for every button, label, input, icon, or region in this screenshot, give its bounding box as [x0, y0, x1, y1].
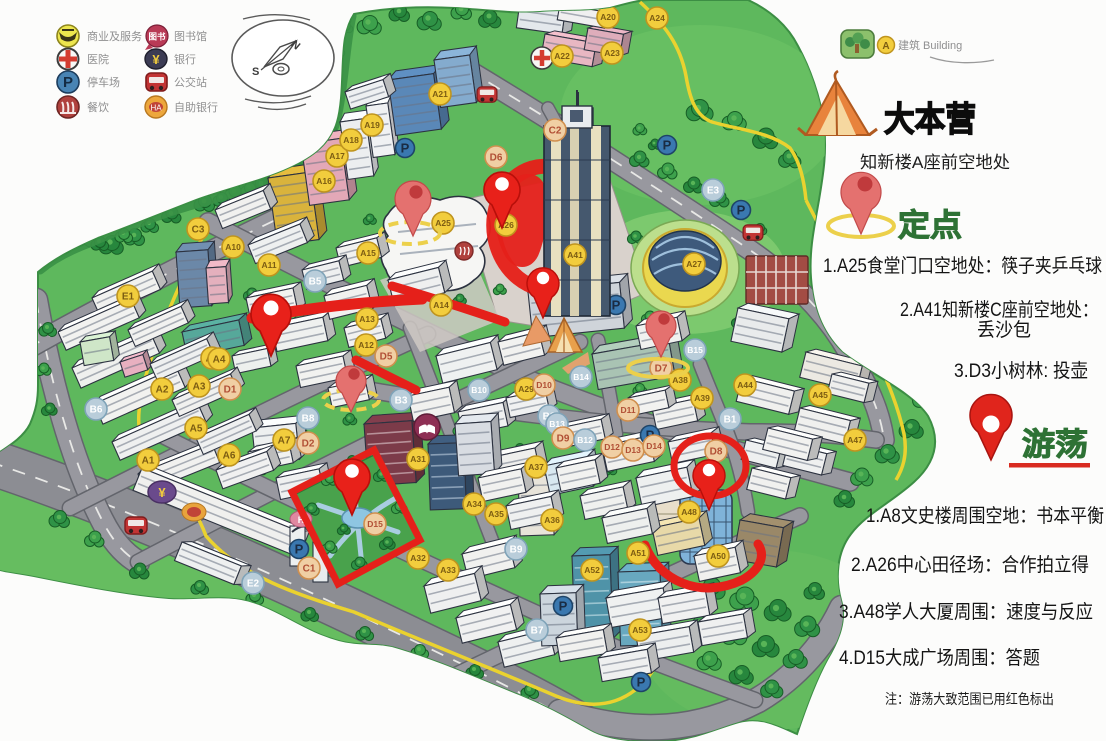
svg-text:D9: D9	[557, 434, 570, 445]
svg-text:A6: A6	[223, 451, 236, 462]
svg-text:A23: A23	[604, 48, 620, 58]
svg-text:A12: A12	[358, 340, 374, 350]
svg-text:P: P	[737, 203, 746, 218]
svg-text:B10: B10	[471, 385, 487, 395]
svg-text:D1: D1	[224, 385, 237, 396]
svg-text:丢沙包: 丢沙包	[977, 319, 1031, 341]
svg-text:D5: D5	[380, 352, 393, 363]
svg-text:A4: A4	[213, 355, 226, 366]
svg-text:¥: ¥	[158, 485, 166, 500]
svg-text:图书: 图书	[148, 32, 166, 42]
svg-text:A16: A16	[316, 176, 332, 186]
svg-text:自助银行: 自助银行	[174, 100, 218, 114]
svg-text:C3: C3	[192, 225, 205, 236]
svg-text:B5: B5	[309, 277, 322, 288]
svg-text:B3: B3	[395, 396, 408, 407]
svg-text:A22: A22	[554, 51, 570, 61]
svg-text:商业及服务: 商业及服务	[87, 29, 142, 43]
svg-text:A7: A7	[278, 436, 291, 447]
svg-text:A32: A32	[410, 553, 426, 563]
svg-text:C1: C1	[303, 564, 316, 575]
svg-text:B15: B15	[687, 345, 703, 355]
svg-text:A13: A13	[359, 314, 375, 324]
svg-text:B8: B8	[302, 414, 315, 425]
svg-text:D2: D2	[302, 439, 315, 450]
svg-text:A14: A14	[433, 300, 449, 310]
svg-text:知新楼A座前空地处: 知新楼A座前空地处	[860, 153, 1010, 172]
svg-text:A31: A31	[410, 454, 426, 464]
svg-text:2.A41知新楼C座前空地处：: 2.A41知新楼C座前空地处：	[900, 299, 1098, 321]
svg-text:HA: HA	[150, 104, 162, 113]
svg-text:A34: A34	[466, 499, 482, 509]
svg-text:D8: D8	[710, 447, 723, 458]
svg-text:A48: A48	[681, 507, 697, 517]
svg-text:A2: A2	[156, 385, 169, 396]
svg-text:A20: A20	[600, 12, 616, 22]
svg-text:P: P	[401, 141, 410, 156]
svg-text:P: P	[63, 74, 73, 91]
svg-text:A39: A39	[694, 393, 710, 403]
svg-text:A3: A3	[193, 382, 206, 393]
svg-text:A21: A21	[432, 89, 448, 99]
svg-text:A1: A1	[142, 456, 155, 467]
svg-text:A45: A45	[812, 390, 828, 400]
svg-text:3.A48学人大厦周围：速度与反应: 3.A48学人大厦周围：速度与反应	[839, 601, 1093, 623]
svg-text:D14: D14	[646, 441, 662, 451]
svg-text:定点: 定点	[898, 208, 962, 243]
svg-text:餐饮: 餐饮	[87, 100, 109, 114]
svg-text:A27: A27	[686, 259, 702, 269]
svg-text:图书馆: 图书馆	[174, 29, 207, 43]
svg-text:A15: A15	[360, 248, 376, 258]
svg-text:A37: A37	[528, 462, 544, 472]
svg-text:P: P	[612, 298, 621, 313]
svg-text:S: S	[252, 66, 259, 78]
svg-text:A: A	[882, 41, 889, 52]
svg-text:D15: D15	[367, 519, 383, 529]
svg-text:D12: D12	[604, 442, 620, 452]
svg-text:A35: A35	[488, 509, 504, 519]
svg-text:E1: E1	[122, 292, 135, 303]
svg-text:注：游荡大致范围已用红色标出: 注：游荡大致范围已用红色标出	[885, 691, 1054, 707]
svg-text:A51: A51	[630, 548, 646, 558]
svg-text:医院: 医院	[87, 52, 109, 66]
svg-text:D11: D11	[620, 405, 635, 415]
svg-text:A18: A18	[343, 135, 359, 145]
svg-text:A33: A33	[440, 565, 456, 575]
svg-text:D6: D6	[490, 153, 503, 164]
svg-text:A10: A10	[225, 242, 241, 252]
svg-text:P: P	[637, 675, 646, 690]
svg-text:P: P	[295, 542, 304, 557]
svg-text:银行: 银行	[174, 52, 196, 66]
svg-text:A19: A19	[364, 120, 380, 130]
svg-text:A29: A29	[518, 384, 534, 394]
svg-text:A44: A44	[737, 380, 753, 390]
svg-text:1.A8文史楼周围空地：书本平衡: 1.A8文史楼周围空地：书本平衡	[866, 505, 1104, 527]
svg-text:P: P	[663, 138, 672, 153]
svg-text:停车场: 停车场	[87, 75, 120, 89]
svg-text:A53: A53	[632, 625, 648, 635]
svg-text:B14: B14	[573, 372, 589, 382]
svg-text:1.A25食堂门口空地处：筷子夹乒乓球: 1.A25食堂门口空地处：筷子夹乒乓球	[823, 255, 1102, 277]
svg-text:A50: A50	[710, 551, 726, 561]
svg-text:A47: A47	[847, 435, 863, 445]
svg-text:游荡: 游荡	[1022, 427, 1088, 462]
svg-text:A5: A5	[190, 424, 203, 435]
svg-text:4.D15大成广场周围：答题: 4.D15大成广场周围：答题	[839, 647, 1040, 669]
svg-text:D10: D10	[536, 380, 552, 390]
svg-text:B1: B1	[724, 415, 737, 426]
svg-text:B7: B7	[531, 626, 544, 637]
svg-text:A17: A17	[329, 151, 345, 161]
svg-text:A46: A46	[837, 325, 853, 335]
svg-text:¥: ¥	[152, 52, 160, 67]
svg-text:C2: C2	[549, 126, 562, 137]
svg-text:D13: D13	[625, 445, 641, 455]
svg-text:B6: B6	[90, 405, 103, 416]
svg-text:A36: A36	[544, 515, 560, 525]
svg-text:A24: A24	[649, 13, 665, 23]
svg-text:E2: E2	[247, 579, 260, 590]
svg-text:B12: B12	[577, 435, 593, 445]
svg-text:D7: D7	[655, 364, 668, 375]
svg-text:3.D3小树林: 投壶: 3.D3小树林: 投壶	[954, 360, 1088, 382]
svg-text:A11: A11	[261, 260, 276, 270]
svg-text:A52: A52	[584, 565, 600, 575]
svg-text:公交站: 公交站	[174, 75, 207, 89]
svg-text:2.A26中心田径场：合作拍立得: 2.A26中心田径场：合作拍立得	[851, 554, 1089, 576]
svg-text:A41: A41	[567, 250, 583, 260]
svg-text:E3: E3	[707, 186, 720, 197]
svg-text:B9: B9	[510, 545, 523, 556]
svg-text:建筑 Building: 建筑 Building	[898, 38, 962, 52]
svg-text:P: P	[559, 599, 568, 614]
svg-text:大本营: 大本营	[884, 101, 976, 139]
